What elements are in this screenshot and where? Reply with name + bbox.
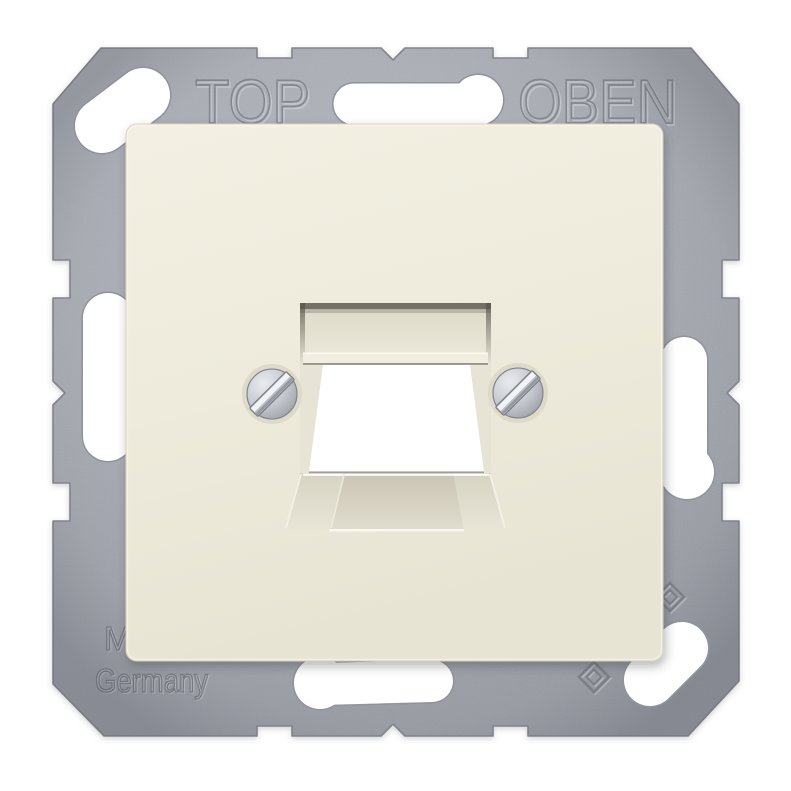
hood-lip	[303, 353, 488, 364]
screw-right	[490, 365, 546, 421]
hood-lip-shadow	[303, 363, 488, 365]
screw-left	[244, 366, 300, 422]
funnel-top-shadow-line	[309, 471, 484, 473]
jack-void	[309, 365, 484, 472]
frame-cutout-top-left	[102, 95, 143, 126]
socket-module-opening	[285, 303, 506, 531]
recess-top-groove	[300, 303, 491, 309]
funnel-tray	[329, 473, 464, 530]
hood-top	[305, 309, 486, 354]
tray-bottom-highlight	[329, 529, 464, 531]
hood-lip-highlight	[303, 352, 488, 354]
recess-top-groove-soft	[300, 309, 491, 313]
product-photo: TOP TOP OBEN OBEN M M Germany Germany	[0, 0, 791, 791]
cover-plate	[126, 124, 663, 661]
funnel-top-highlight-line	[303, 474, 489, 476]
socket-frame-illustration: TOP TOP OBEN OBEN M M Germany Germany	[0, 0, 791, 791]
